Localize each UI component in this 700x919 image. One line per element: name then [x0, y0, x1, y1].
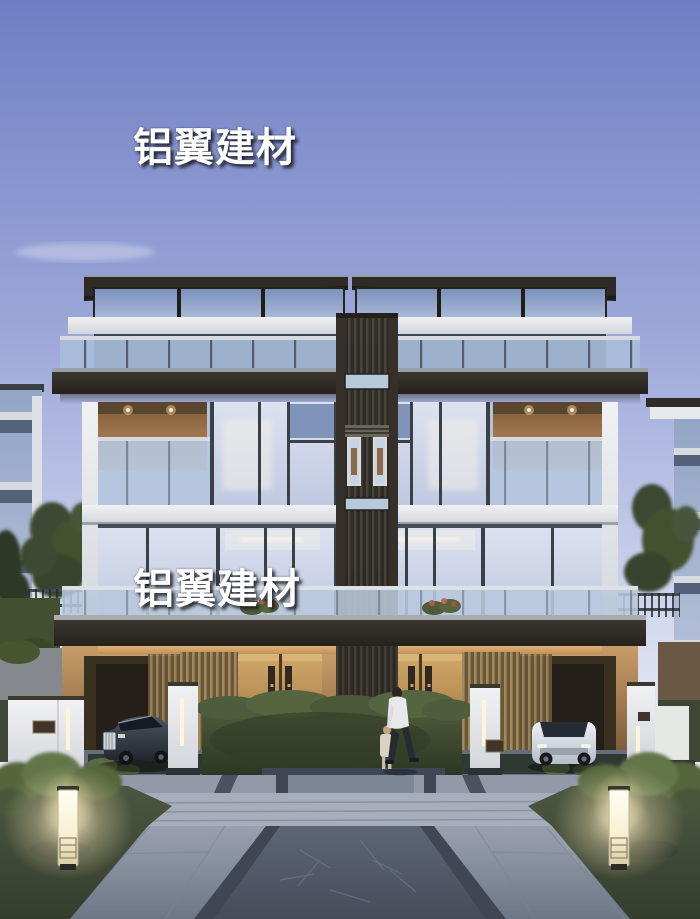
window-wall-mid-left	[210, 402, 338, 505]
carport-eave	[54, 615, 646, 646]
terrace-railing-left	[60, 336, 348, 370]
gate-pier-inner-left	[166, 682, 200, 777]
gate-pier-inner-right	[468, 684, 504, 777]
hedge-center	[196, 690, 474, 776]
scene-canvas	[0, 0, 700, 919]
watermark-middle: 铝翼建材	[133, 569, 301, 610]
balcony-left	[95, 402, 210, 507]
bollard-lamp-left	[2, 764, 134, 880]
cloud	[15, 243, 155, 261]
slab-band-left	[68, 317, 348, 334]
bollard-lamp-right	[553, 764, 685, 880]
balcony-right	[490, 402, 605, 507]
clerestory-left	[94, 288, 344, 318]
architectural-rendering: 铝翼建材 铝翼建材	[0, 0, 700, 919]
watermark-top: 铝翼建材	[133, 128, 297, 168]
car-white	[528, 722, 604, 773]
